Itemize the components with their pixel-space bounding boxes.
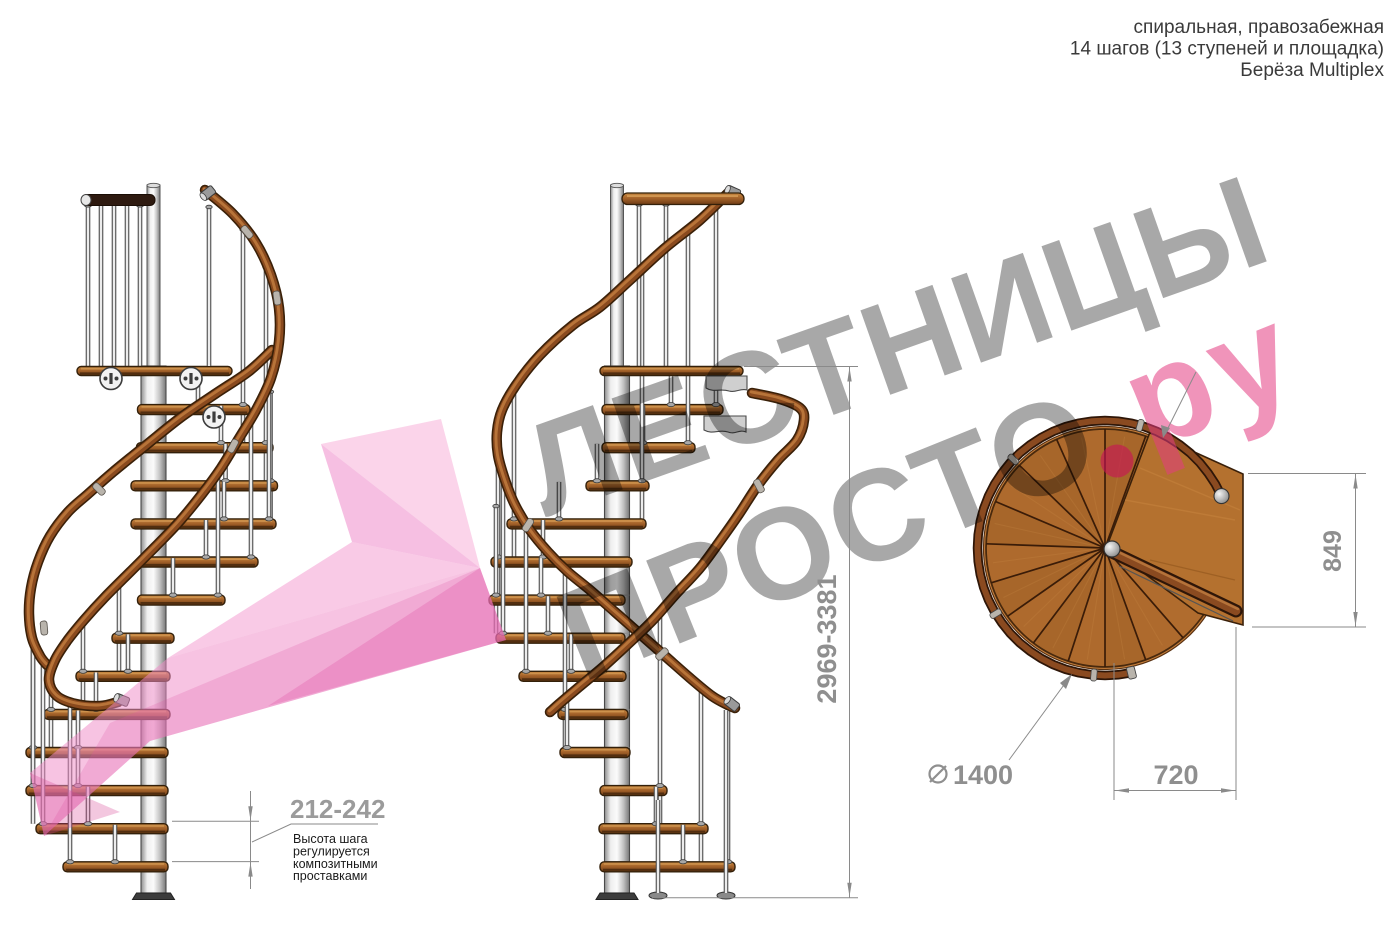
svg-text:2969-3381: 2969-3381 — [812, 574, 842, 703]
svg-text:212-242: 212-242 — [290, 794, 385, 824]
svg-text:849: 849 — [1319, 530, 1347, 572]
svg-text:1400: 1400 — [953, 760, 1013, 790]
svg-text:Высота шагарегулируетсякомпози: Высота шагарегулируетсякомпозитнымипрост… — [293, 832, 378, 883]
svg-text:720: 720 — [1153, 760, 1198, 790]
